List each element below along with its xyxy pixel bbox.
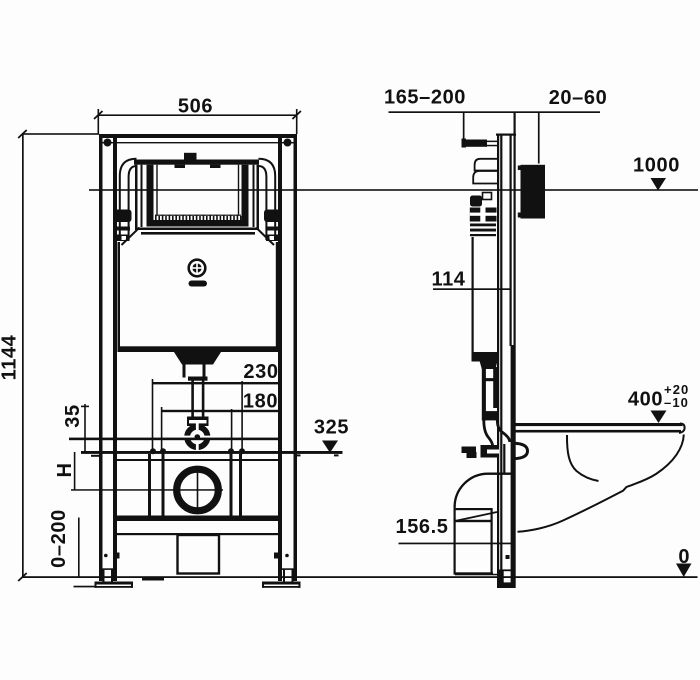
svg-text:180: 180 — [243, 391, 278, 413]
svg-text:H: H — [54, 462, 76, 477]
svg-text:230: 230 — [243, 361, 278, 383]
svg-text:114: 114 — [431, 269, 465, 291]
svg-text:400: 400 — [628, 389, 663, 411]
svg-text:156.5: 156.5 — [395, 516, 448, 538]
svg-text:506: 506 — [178, 96, 213, 118]
svg-text:1000: 1000 — [633, 155, 680, 177]
svg-text:0: 0 — [678, 546, 690, 568]
svg-text:325: 325 — [314, 417, 349, 439]
svg-text:165–200: 165–200 — [384, 87, 466, 109]
svg-text:0–200: 0–200 — [48, 509, 70, 568]
svg-text:–10: –10 — [664, 395, 689, 410]
svg-text:35: 35 — [62, 404, 84, 427]
svg-text:20–60: 20–60 — [549, 87, 608, 109]
svg-text:1144: 1144 — [0, 334, 21, 380]
